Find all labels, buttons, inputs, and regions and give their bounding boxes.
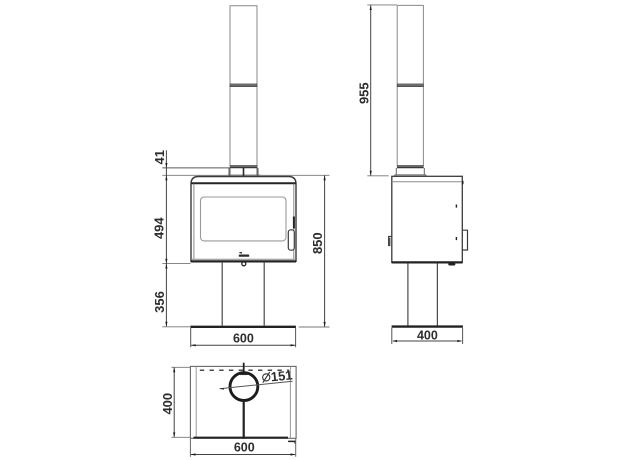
svg-text:600: 600 [234, 441, 255, 455]
svg-text:850: 850 [310, 232, 325, 254]
svg-text:41: 41 [152, 150, 167, 164]
svg-text:356: 356 [152, 291, 167, 313]
svg-text:494: 494 [151, 217, 166, 239]
svg-text:400: 400 [417, 329, 438, 343]
svg-text:151: 151 [270, 367, 293, 384]
svg-text:400: 400 [160, 393, 175, 415]
svg-text:600: 600 [233, 332, 254, 346]
svg-text:955: 955 [357, 82, 372, 104]
